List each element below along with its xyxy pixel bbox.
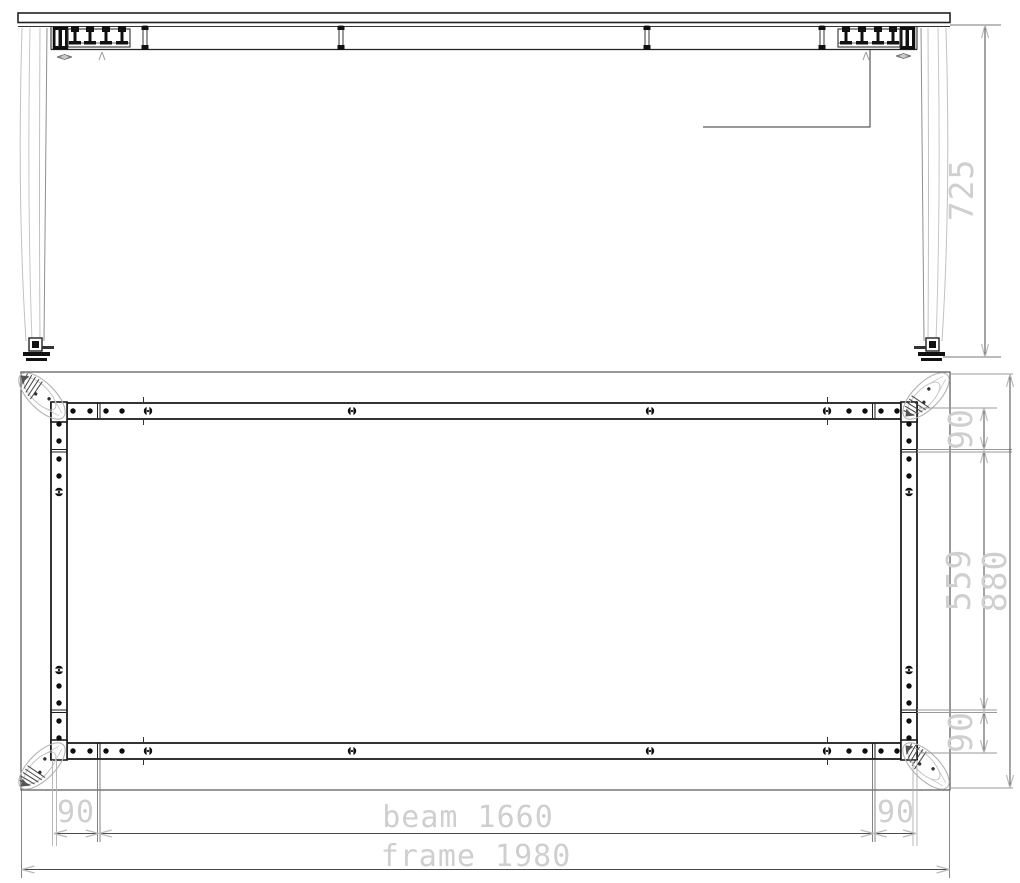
bolt-hole xyxy=(56,421,61,426)
bolt-stem xyxy=(892,32,895,41)
bolt-stem xyxy=(877,32,880,41)
bolt-stem xyxy=(105,32,108,41)
bolt-base xyxy=(116,41,128,45)
dim-side-559: 559 xyxy=(939,549,978,612)
bolt-head xyxy=(71,26,79,32)
circle xyxy=(921,400,926,405)
bolt-head xyxy=(842,26,850,32)
tab-top-cap xyxy=(142,26,149,30)
bolt-hole xyxy=(906,683,911,688)
dim-bottom-left-90: 90 xyxy=(57,795,95,830)
bolt-hole xyxy=(56,735,61,740)
bolt-base xyxy=(100,41,112,45)
bolt-hole xyxy=(56,700,61,705)
circle xyxy=(649,750,651,752)
bolt-head xyxy=(102,26,110,32)
bolt-base xyxy=(69,41,81,45)
bolt-hole xyxy=(87,408,92,413)
dim-frame-1980: frame 1980 xyxy=(381,839,572,874)
circle xyxy=(37,770,42,775)
bolt-hole xyxy=(70,748,75,753)
dim-side-top-90: 90 xyxy=(941,408,980,450)
bolt-base xyxy=(840,41,852,45)
dim-side-880: 880 xyxy=(975,550,1014,613)
elevation-view xyxy=(18,13,950,361)
bolt-head xyxy=(118,26,126,32)
dim-bottom-right-90: 90 xyxy=(877,795,915,830)
bolt-hole xyxy=(894,748,899,753)
mini-caret xyxy=(99,52,105,60)
circle xyxy=(826,750,828,752)
bracket-mini-dimension-marks xyxy=(57,52,911,60)
circle xyxy=(926,387,931,392)
bolt-head xyxy=(858,26,866,32)
bolt-base xyxy=(887,41,899,45)
right-foot-glide xyxy=(914,338,945,361)
bolt-hole xyxy=(862,748,867,753)
bolt-stem xyxy=(861,32,864,41)
circle xyxy=(826,410,828,412)
beam-connector-tabs xyxy=(142,26,826,50)
bolt-hole xyxy=(56,683,61,688)
corner-leg-sections xyxy=(12,366,957,797)
bolt-hole xyxy=(56,438,61,443)
bolt-base xyxy=(856,41,868,45)
tabletop-edge xyxy=(18,13,950,23)
bolt-hole xyxy=(103,408,108,413)
technical-drawing-page: 725 90 559 880 90 90 beam 1660 90 frame … xyxy=(0,0,1020,883)
frame-rails xyxy=(51,402,917,760)
bolt-hole xyxy=(906,438,911,443)
circle xyxy=(147,750,149,752)
bolt-hole xyxy=(862,408,867,413)
bolt-head xyxy=(889,26,897,32)
rail-slot-holes xyxy=(54,406,913,755)
bottom-rail xyxy=(51,743,917,759)
bolt-stem xyxy=(74,32,77,41)
circle xyxy=(58,491,60,493)
bolt-hole xyxy=(103,748,108,753)
circle xyxy=(931,766,936,771)
leader-line xyxy=(703,50,870,127)
bolt-hole xyxy=(87,748,92,753)
circle xyxy=(47,396,52,401)
circle xyxy=(351,410,353,412)
circle xyxy=(908,669,910,671)
top-rail xyxy=(51,403,917,419)
bolt-hole xyxy=(906,456,911,461)
bolt-hole xyxy=(906,421,911,426)
dim-height-725: 725 xyxy=(942,159,981,222)
bolt-hole xyxy=(846,408,851,413)
bolt-hole xyxy=(906,473,911,478)
bolt-hole xyxy=(906,735,911,740)
circle xyxy=(42,757,47,762)
bolt-head xyxy=(874,26,882,32)
bolt-hole xyxy=(894,408,899,413)
circle xyxy=(33,391,38,396)
bolt-hole xyxy=(56,473,61,478)
bolt-hole xyxy=(119,748,124,753)
tab-top-cap xyxy=(338,26,345,30)
dim-side-bottom-90: 90 xyxy=(941,711,980,753)
left-foot-glide xyxy=(23,338,54,361)
circle xyxy=(58,669,60,671)
plan-view xyxy=(12,366,957,797)
mini-caret xyxy=(863,52,869,60)
bolt-stem xyxy=(89,32,92,41)
bolt-hole xyxy=(119,408,124,413)
tab-top-cap xyxy=(644,26,651,30)
tab-foot xyxy=(644,45,651,50)
circle xyxy=(908,491,910,493)
circle xyxy=(917,761,922,766)
rail-seams xyxy=(51,397,917,765)
tab-foot xyxy=(338,45,345,50)
bolt-stem xyxy=(845,32,848,41)
bolt-stem xyxy=(121,32,124,41)
bolt-hole xyxy=(56,718,61,723)
bolt-base xyxy=(84,41,96,45)
bolt-hole xyxy=(906,700,911,705)
tab-foot xyxy=(142,45,149,50)
bolt-hole xyxy=(56,456,61,461)
rail-bolt-holes xyxy=(56,408,911,753)
circle xyxy=(351,750,353,752)
bolt-base xyxy=(872,41,884,45)
bolt-hole xyxy=(878,408,883,413)
circle xyxy=(649,410,651,412)
bolt-hole xyxy=(846,748,851,753)
bolt-hole xyxy=(906,718,911,723)
bolt-head xyxy=(86,26,94,32)
circle xyxy=(147,410,149,412)
table-drawing-svg: 725 90 559 880 90 90 beam 1660 90 frame … xyxy=(0,0,1020,883)
tab-top-cap xyxy=(819,26,826,30)
bracket-bolts xyxy=(69,26,899,45)
dim-beam-1660: beam 1660 xyxy=(382,800,554,835)
left-leg xyxy=(20,28,54,361)
tabletop-outline xyxy=(21,372,950,790)
bolt-hole xyxy=(70,408,75,413)
tab-foot xyxy=(819,45,826,50)
bolt-hole xyxy=(878,748,883,753)
